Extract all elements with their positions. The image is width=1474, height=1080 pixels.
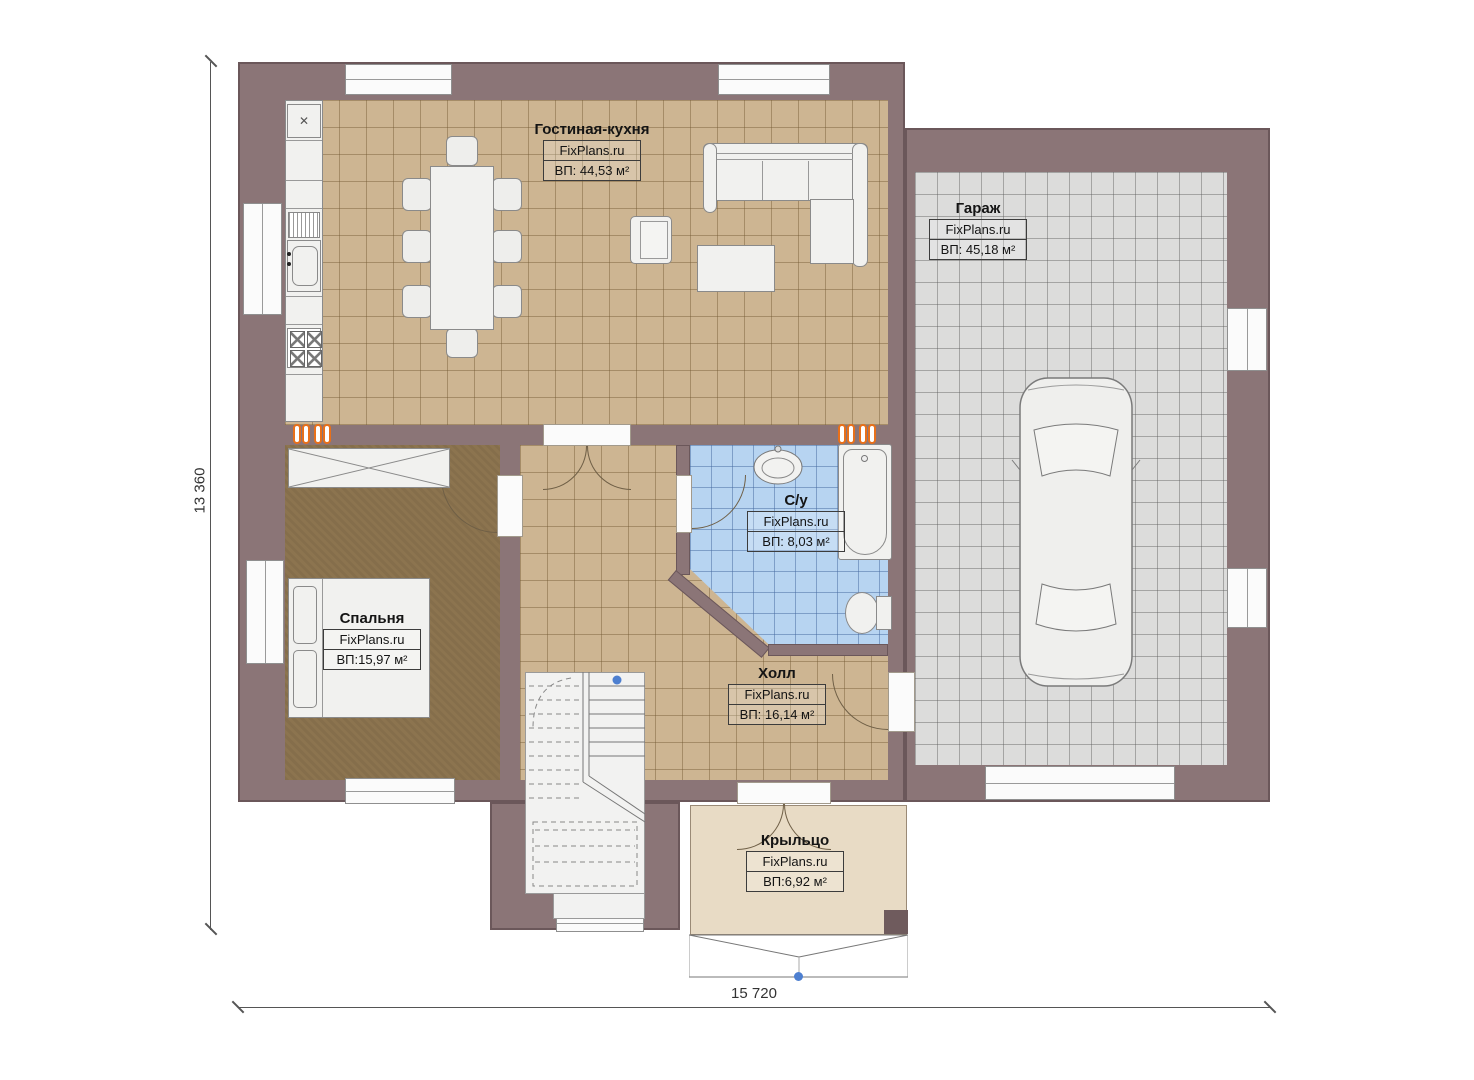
coffee-table [697,245,775,292]
room-label-hall: Холл FixPlans.ru ВП: 16,14 м² [692,665,862,725]
radiator-icon [838,424,855,444]
room-area: ВП: 16,14 м² [729,705,825,724]
radiator-icon [314,424,331,444]
room-name: Гостиная-кухня [507,121,677,138]
chair [402,178,432,211]
room-name: Холл [692,665,862,682]
room-area: ВП: 8,03 м² [748,532,844,551]
room-info-box: FixPlans.ru ВП: 8,03 м² [747,511,845,552]
window [1227,568,1267,628]
staircase [525,672,645,894]
room-name: Спальня [287,610,457,627]
fridge: ✕ [287,104,321,138]
room-name: С/у [711,492,881,509]
dimension-tick [205,55,218,68]
door-opening [737,782,831,804]
chair [446,136,478,166]
room-area: ВП:6,92 м² [747,872,843,891]
radiator-icon [293,424,310,444]
chair [402,285,432,318]
room-area: ВП: 45,18 м² [930,240,1026,259]
window [345,64,452,95]
fridge-icon: ✕ [288,105,320,137]
counter-divider [286,180,322,181]
window [243,203,282,315]
counter-divider [286,208,322,209]
window [718,64,830,95]
brand-watermark: FixPlans.ru [748,512,844,532]
stair-landing [553,893,645,919]
sofa-body [703,143,868,201]
wardrobe [288,448,450,488]
chair [492,230,522,263]
room-name: Крыльцо [710,832,880,849]
dimension-line-vertical [210,62,211,930]
brand-watermark: FixPlans.ru [729,685,825,705]
chair [492,285,522,318]
wardrobe-cross-icon [289,449,449,487]
porch-pillar [884,910,908,934]
brand-watermark: FixPlans.ru [747,852,843,872]
burner-icon [307,331,322,348]
window [345,778,455,804]
room-label-porch: Крыльцо FixPlans.ru ВП:6,92 м² [710,832,880,892]
floor-plan: 13 360 15 720 ✕ [0,0,1474,1080]
room-label-living-kitchen: Гостиная-кухня FixPlans.ru ВП: 44,53 м² [507,121,677,181]
toilet-bowl [845,592,879,634]
stove [287,328,321,368]
dimension-tick [205,923,218,936]
armchair-seat [640,221,668,259]
room-info-box: FixPlans.ru ВП:15,97 м² [323,629,421,670]
garage-gate [985,766,1175,800]
kitchen-sink-basin [292,246,318,286]
counter-divider [286,324,322,325]
bathroom-sink [752,442,804,486]
chair [492,178,522,211]
sofa-seat-divider [808,161,809,200]
counter-divider [286,140,322,141]
faucet-dot [287,252,291,256]
dimension-line-horizontal [238,1007,1270,1008]
room-info-box: FixPlans.ru ВП: 45,18 м² [929,219,1027,260]
window [1227,308,1267,371]
door-opening [676,475,692,533]
dimension-height-label: 13 360 [192,431,209,551]
chair [446,328,478,358]
chair [402,230,432,263]
dimension-width-label: 15 720 [238,985,1270,1002]
room-label-garage: Гараж FixPlans.ru ВП: 45,18 м² [893,200,1063,260]
counter-divider [286,296,322,297]
toilet-tank [876,596,892,630]
door-opening [543,424,631,446]
sofa-back-line [717,159,853,160]
room-info-box: FixPlans.ru ВП: 16,14 м² [728,684,826,725]
dish-rack [288,212,320,238]
brand-watermark: FixPlans.ru [544,141,640,161]
room-name: Гараж [893,200,1063,217]
burner-icon [290,331,305,348]
sofa-chaise [810,199,854,264]
faucet-dot [287,262,291,266]
room-info-box: FixPlans.ru ВП: 44,53 м² [543,140,641,181]
counter-divider [286,374,322,375]
sofa-arm [852,143,868,267]
marker-dot [794,972,803,981]
sofa-arm [703,143,717,213]
room-label-bedroom: Спальня FixPlans.ru ВП:15,97 м² [287,610,457,670]
sofa-seat-divider [762,161,763,200]
car [1008,372,1144,692]
bathroom-wall-bottom [768,644,888,656]
room-info-box: FixPlans.ru ВП:6,92 м² [746,851,844,892]
room-label-bathroom: С/у FixPlans.ru ВП: 8,03 м² [711,492,881,552]
door-opening [497,475,523,537]
room-area: ВП: 44,53 м² [544,161,640,180]
burner-icon [307,350,322,367]
brand-watermark: FixPlans.ru [324,630,420,650]
window [246,560,284,664]
room-area: ВП:15,97 м² [324,650,420,669]
sofa-back-line [717,153,853,154]
door-opening [888,672,915,732]
dining-table [430,166,494,330]
burner-icon [290,350,305,367]
bathtub-drain [861,455,868,462]
brand-watermark: FixPlans.ru [930,220,1026,240]
radiator-icon [859,424,876,444]
